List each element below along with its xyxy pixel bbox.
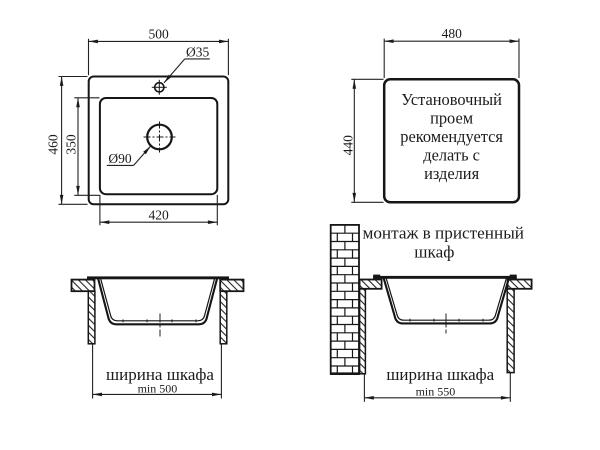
svg-text:480: 480 [442, 26, 463, 41]
svg-text:420: 420 [148, 208, 169, 223]
svg-text:проем: проем [430, 109, 473, 128]
svg-text:min 500: min 500 [138, 382, 178, 396]
svg-text:min 550: min 550 [416, 385, 456, 399]
svg-text:460: 460 [45, 134, 60, 155]
svg-text:440: 440 [340, 135, 355, 156]
svg-text:изделия: изделия [424, 164, 480, 183]
svg-text:делать с: делать с [423, 146, 480, 165]
svg-text:монтаж в пристенный: монтаж в пристенный [362, 224, 524, 243]
svg-text:350: 350 [63, 134, 78, 155]
svg-text:500: 500 [148, 26, 169, 41]
svg-text:ширина шкафа: ширина шкафа [386, 365, 494, 384]
svg-text:рекомендуется: рекомендуется [400, 127, 503, 146]
svg-text:Ø35: Ø35 [186, 45, 209, 60]
svg-text:Установочный: Установочный [401, 90, 502, 109]
svg-text:Ø90: Ø90 [108, 151, 131, 166]
svg-text:шкаф: шкаф [414, 243, 454, 262]
